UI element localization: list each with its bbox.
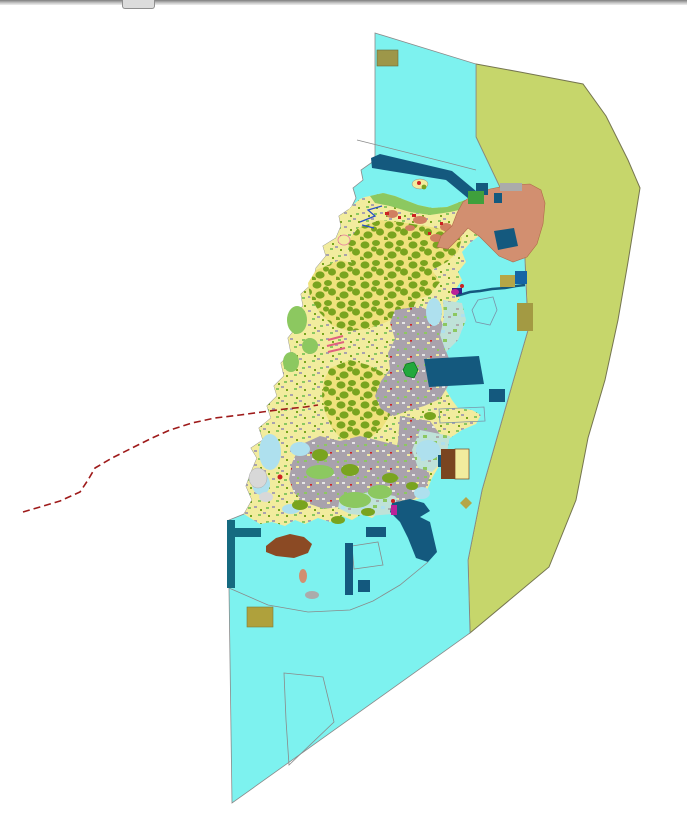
map-canvas[interactable] (0, 0, 687, 821)
west-breakwater-arm (235, 528, 261, 537)
east-khaki-rect-large (517, 303, 533, 331)
harbor-magenta-accent (391, 505, 397, 515)
south-pier-head (366, 527, 386, 537)
west-coast-red-dot (278, 475, 283, 480)
south-pier-vertical (345, 543, 353, 595)
east-khaki-square (500, 275, 515, 287)
south-water-square (358, 580, 370, 592)
map-window (0, 0, 687, 821)
east-water-square (489, 389, 505, 402)
southeast-brown-facility (438, 449, 469, 479)
west-breakwater-vertical (227, 520, 235, 588)
south-salmon-islet (299, 569, 307, 583)
east-navy-square (515, 271, 527, 284)
northwest-khaki-rect (377, 50, 398, 66)
east-harbor-block (424, 356, 484, 387)
window-splitter-bar[interactable] (0, 0, 687, 5)
north-green-rect (468, 191, 484, 204)
salmon-gray-patch (500, 183, 522, 191)
salmon-blue-parallelogram (494, 228, 518, 250)
south-gray-islet (305, 591, 319, 599)
harbor-red-dot (391, 499, 395, 503)
south-khaki-rect (247, 607, 273, 627)
splitter-handle[interactable] (122, 0, 155, 9)
north-water-square-2 (494, 193, 502, 203)
